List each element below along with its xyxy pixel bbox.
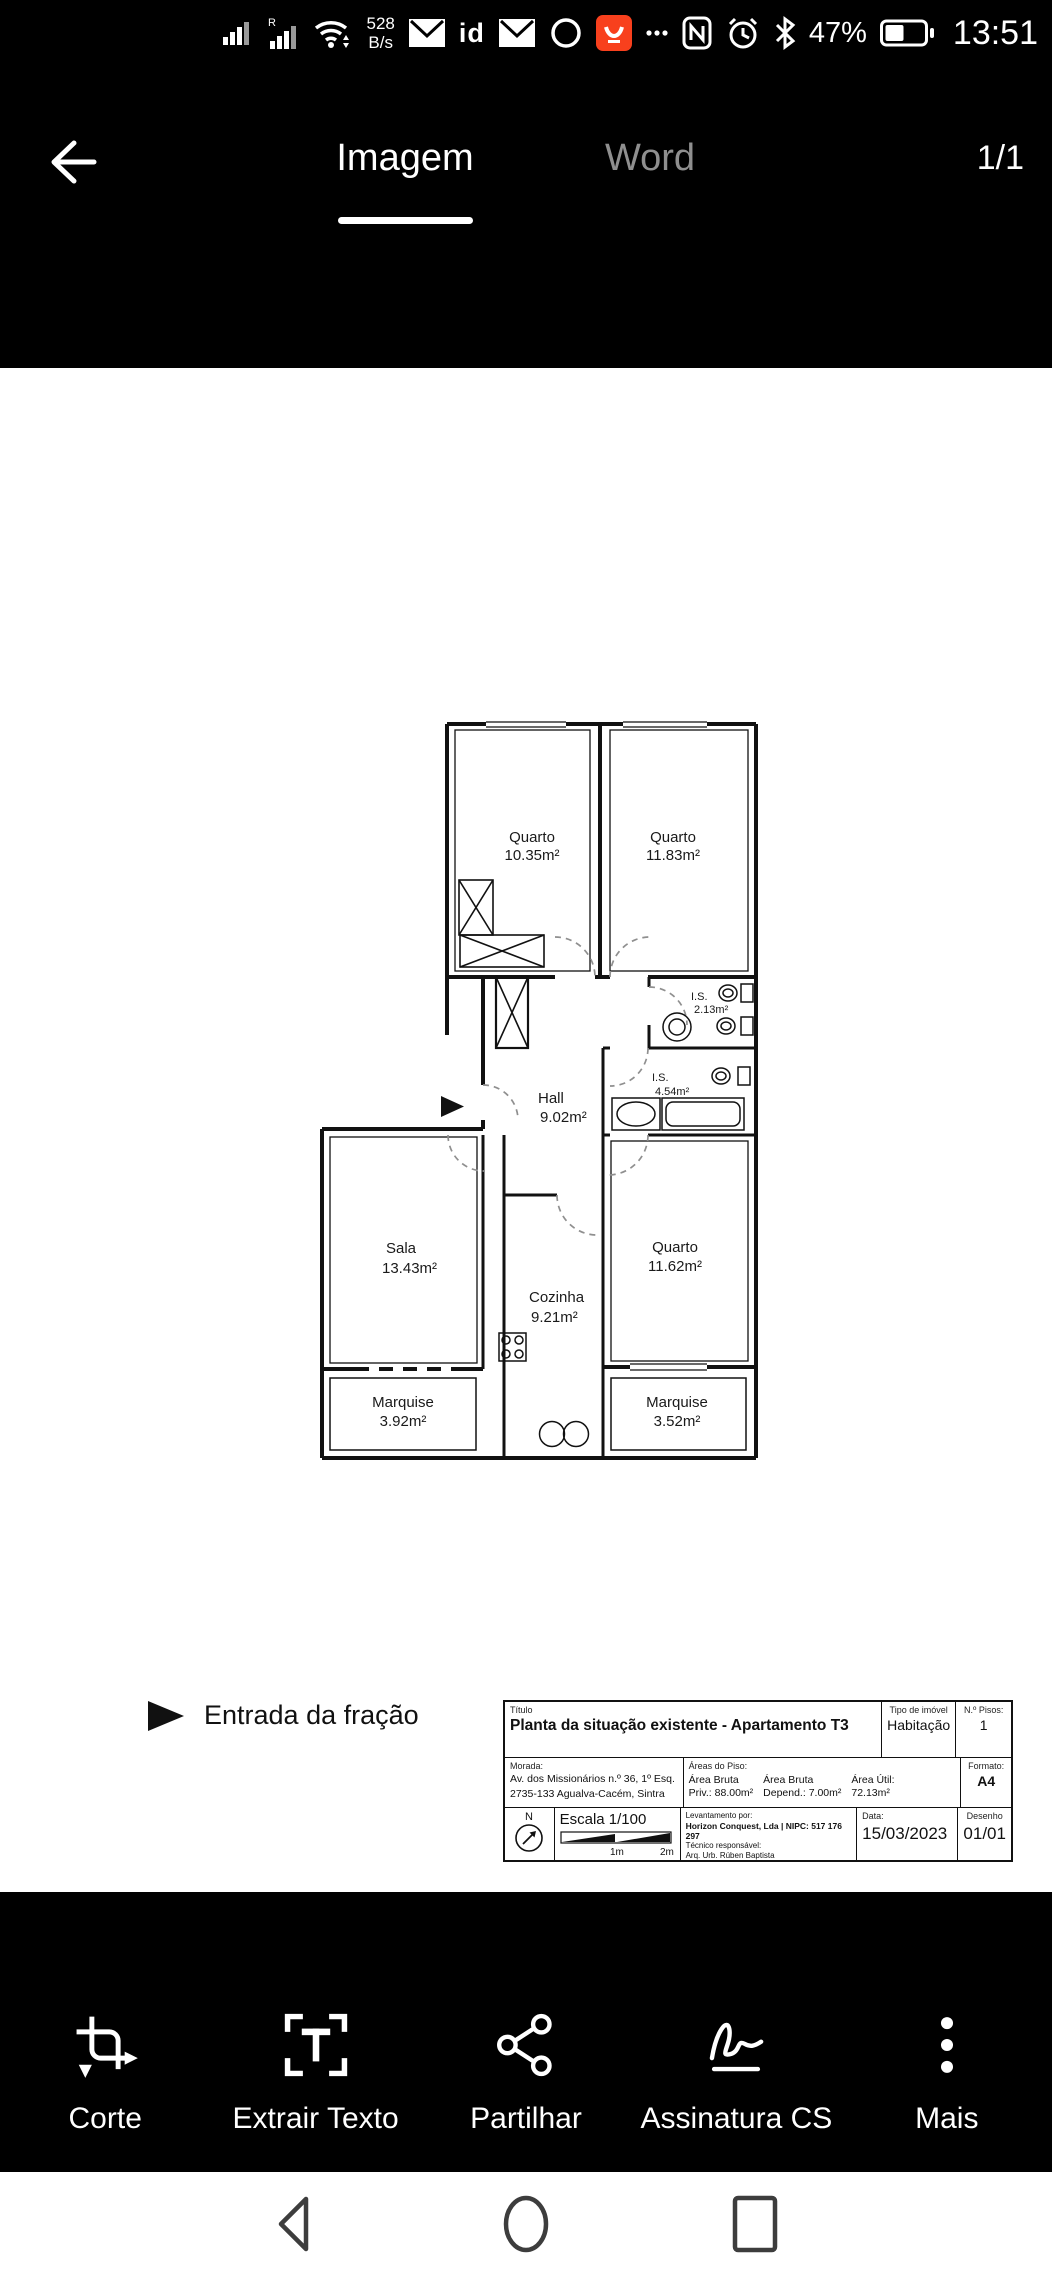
svg-text:I.S.: I.S. xyxy=(691,991,708,1003)
svg-text:Quarto: Quarto xyxy=(652,1239,698,1256)
svg-text:R: R xyxy=(268,17,276,29)
app-bar: Imagem Word 1/1 xyxy=(0,95,1052,245)
svg-text:10.35m²: 10.35m² xyxy=(504,847,559,864)
scale-bar: 1m 2m xyxy=(560,1828,674,1856)
svg-text:13.43m²: 13.43m² xyxy=(382,1260,437,1277)
bottom-toolbar: Corte Extrair Texto Partilhar Assinatura… xyxy=(0,1892,1052,2172)
entrance-legend-label: Entrada da fração xyxy=(204,1700,419,1731)
wifi-icon xyxy=(313,16,353,50)
svg-text:Sala: Sala xyxy=(386,1240,417,1257)
battery-icon xyxy=(880,18,936,48)
id-app-icon: id xyxy=(459,18,485,49)
tab-word[interactable]: Word xyxy=(595,137,705,180)
more-vert-icon xyxy=(912,2010,982,2080)
date-cell: Data: 15/03/2023 xyxy=(857,1808,958,1860)
svg-text:Quarto: Quarto xyxy=(650,829,696,846)
svg-text:Hall: Hall xyxy=(538,1090,564,1107)
android-navigation-bar xyxy=(0,2172,1052,2276)
svg-text:4.54m²: 4.54m² xyxy=(655,1086,690,1098)
drawing-number-cell: Desenho 01/01 xyxy=(958,1808,1011,1860)
crop-button[interactable]: Corte xyxy=(0,1892,210,2172)
android-recents-button[interactable] xyxy=(728,2194,784,2254)
bluetooth-icon xyxy=(774,16,796,50)
svg-text:3.52m²: 3.52m² xyxy=(654,1413,701,1430)
clock: 13:51 xyxy=(953,14,1038,53)
svg-text:Marquise: Marquise xyxy=(372,1394,434,1411)
signature-button[interactable]: Assinatura CS xyxy=(631,1892,841,2172)
android-back-button[interactable] xyxy=(270,2194,326,2254)
areas-cell: Áreas do Piso: Área Bruta Priv.: 88.00m²… xyxy=(684,1758,962,1807)
nfc-icon xyxy=(682,16,712,50)
entrance-arrow-icon xyxy=(441,1096,464,1117)
signal-strength-icon xyxy=(221,17,253,49)
sync-circle-icon xyxy=(549,16,583,50)
svg-text:11.83m²: 11.83m² xyxy=(646,847,700,864)
mail-icon xyxy=(408,18,446,48)
svg-text:2.13m²: 2.13m² xyxy=(694,1004,729,1016)
share-icon xyxy=(491,2010,561,2080)
svg-text:N: N xyxy=(525,1811,533,1823)
shopping-app-icon xyxy=(596,15,632,51)
svg-text:9.21m²: 9.21m² xyxy=(531,1309,578,1326)
document-image: Quarto 10.35m² Quarto 11.83m² I.S. 2.13m… xyxy=(0,368,1052,1892)
alarm-icon xyxy=(725,15,761,51)
format-cell: Formato: A4 xyxy=(961,1758,1011,1807)
extract-text-icon xyxy=(281,2010,351,2080)
android-home-button[interactable] xyxy=(498,2194,554,2254)
svg-text:9.02m²: 9.02m² xyxy=(540,1109,587,1126)
svg-text:Quarto: Quarto xyxy=(509,829,555,846)
signature-icon xyxy=(701,2010,771,2080)
svg-text:1m: 1m xyxy=(610,1847,624,1856)
address-cell: Morada: Av. dos Missionários n.º 36, 1º … xyxy=(505,1758,684,1807)
title-block: Título Planta da situação existente - Ap… xyxy=(503,1700,1013,1862)
north-arrow-icon: N xyxy=(509,1809,549,1855)
wardrobe-symbols xyxy=(459,880,544,1048)
share-button[interactable]: Partilhar xyxy=(421,1892,631,2172)
svg-text:Cozinha: Cozinha xyxy=(529,1289,585,1306)
title-cell: Título Planta da situação existente - Ap… xyxy=(505,1702,882,1757)
svg-text:I.S.: I.S. xyxy=(652,1072,669,1084)
kitchen-fixtures xyxy=(499,1333,589,1447)
svg-text:2m: 2m xyxy=(660,1847,674,1856)
north-cell: N xyxy=(505,1808,555,1860)
more-button[interactable]: Mais xyxy=(842,1892,1052,2172)
tab-imagem[interactable]: Imagem xyxy=(330,137,480,180)
property-type-cell: Tipo de imóvel Habitação xyxy=(882,1702,956,1757)
page-indicator: 1/1 xyxy=(977,139,1024,178)
active-tab-underline xyxy=(338,217,473,224)
back-arrow-icon[interactable] xyxy=(44,133,102,191)
crop-rotate-icon xyxy=(70,2010,140,2080)
battery-percent: 47% xyxy=(809,17,867,50)
svg-text:3.92m²: 3.92m² xyxy=(380,1413,427,1430)
status-bar: R 528 B/s id xyxy=(0,0,1052,66)
entrance-legend: Entrada da fração xyxy=(148,1700,419,1731)
svg-text:11.62m²: 11.62m² xyxy=(648,1258,702,1275)
entrance-arrow-icon xyxy=(148,1701,184,1731)
signal-strength-r-icon: R xyxy=(266,15,300,51)
surveyor-cell: Levantamento por: Horizon Conquest, Lda … xyxy=(681,1808,858,1860)
mail2-icon xyxy=(498,18,536,48)
svg-text:Marquise: Marquise xyxy=(646,1394,708,1411)
more-notifications-icon xyxy=(645,18,669,48)
floor-plan: Quarto 10.35m² Quarto 11.83m² I.S. 2.13m… xyxy=(300,690,780,1490)
extract-text-button[interactable]: Extrair Texto xyxy=(210,1892,420,2172)
floors-cell: N.º Pisos: 1 xyxy=(956,1702,1011,1757)
bathroom-fixtures xyxy=(612,984,753,1130)
network-speed: 528 B/s xyxy=(366,14,394,52)
scale-cell: Escala 1/100 1m 2m xyxy=(555,1808,681,1860)
